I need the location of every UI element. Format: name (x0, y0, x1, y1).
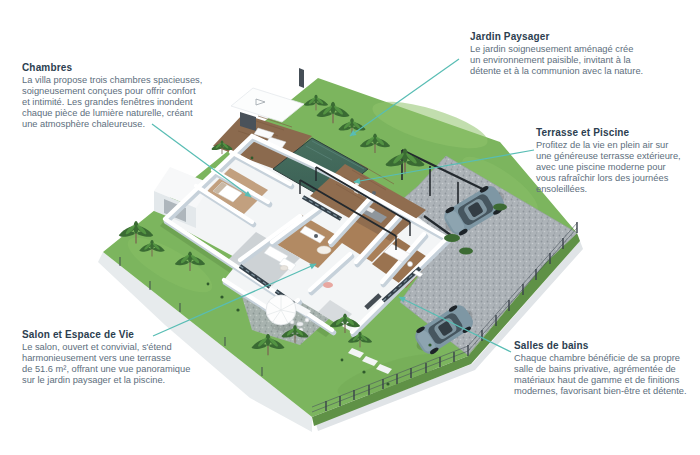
annotation-jardin-paysager: Jardin Paysager Le jardin soigneusement … (470, 31, 643, 77)
annotation-salles-title: Salles de bains (514, 340, 687, 351)
annotation-salon-body: Le salon, ouvert et convivial, s'étend h… (22, 342, 190, 386)
annotation-salon-title: Salon et Espace de Vie (22, 329, 190, 340)
annotation-jardin-title: Jardin Paysager (470, 31, 643, 42)
annotation-chambres: Chambres La villa propose trois chambres… (22, 62, 202, 130)
annotation-salles-de-bains: Salles de bains Chaque chambre bénéficie… (514, 340, 687, 397)
annotation-chambres-title: Chambres (22, 62, 202, 73)
annotation-terrasse-piscine: Terrasse et Piscine Profitez de la vie e… (536, 127, 681, 195)
annotation-salon-espace-de-vie: Salon et Espace de Vie Le salon, ouvert … (22, 329, 190, 386)
annotation-chambres-body: La villa propose trois chambres spacieus… (22, 75, 202, 130)
villa-infographic: Chambres La villa propose trois chambres… (0, 0, 700, 455)
annotation-jardin-body: Le jardin soigneusement aménagé crée un … (470, 44, 643, 77)
annotation-salles-body: Chaque chambre bénéficie de sa propre sa… (514, 353, 687, 397)
annotation-terrasse-body: Profitez de la vie en plein air sur une … (536, 140, 681, 195)
annotation-terrasse-title: Terrasse et Piscine (536, 127, 681, 138)
